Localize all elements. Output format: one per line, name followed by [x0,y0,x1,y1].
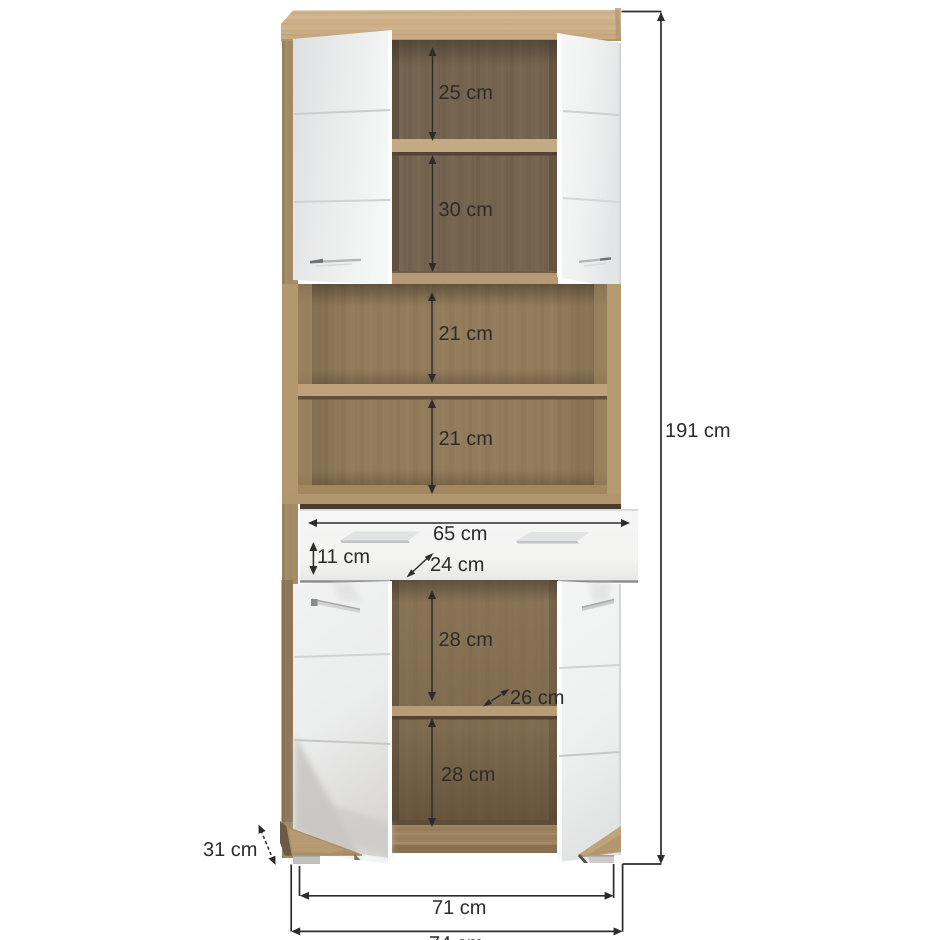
svg-text:65 cm: 65 cm [433,523,487,545]
svg-text:74 cm: 74 cm [429,933,483,940]
svg-text:21 cm: 21 cm [439,323,493,345]
svg-text:30 cm: 30 cm [439,199,493,221]
svg-text:26 cm: 26 cm [510,687,564,709]
svg-text:191 cm: 191 cm [665,420,731,442]
svg-text:24 cm: 24 cm [430,554,484,576]
svg-text:28 cm: 28 cm [439,629,493,651]
svg-text:31 cm: 31 cm [203,839,257,861]
svg-text:11 cm: 11 cm [317,546,370,568]
svg-text:21 cm: 21 cm [439,428,493,450]
svg-text:25 cm: 25 cm [439,82,493,104]
svg-text:71 cm: 71 cm [432,897,486,919]
svg-text:28 cm: 28 cm [441,764,495,786]
